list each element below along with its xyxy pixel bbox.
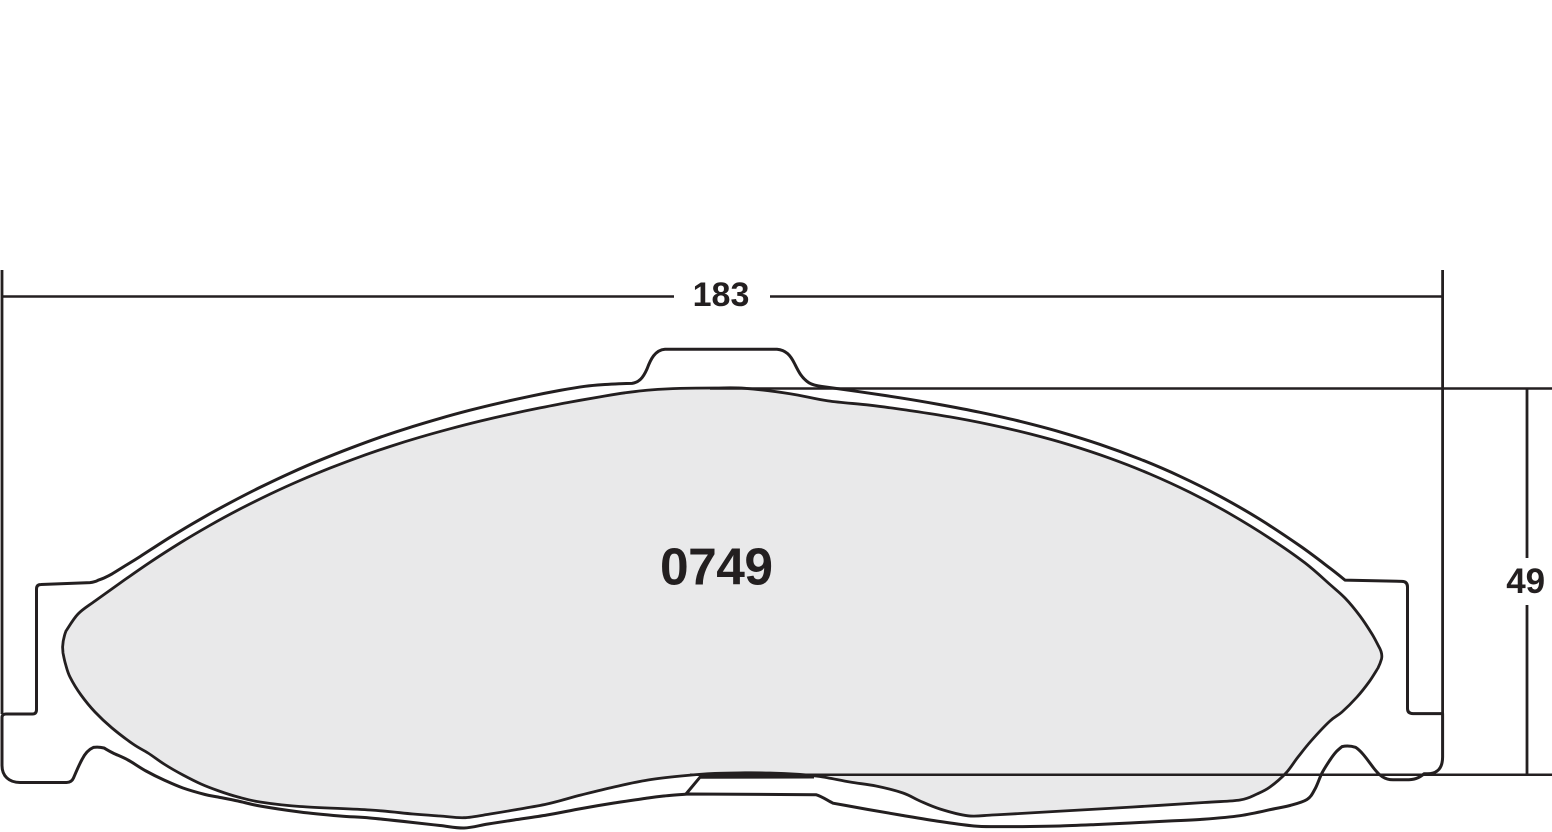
svg-text:49: 49 (1506, 562, 1545, 601)
svg-text:0749: 0749 (660, 537, 773, 595)
svg-text:183: 183 (693, 276, 750, 314)
